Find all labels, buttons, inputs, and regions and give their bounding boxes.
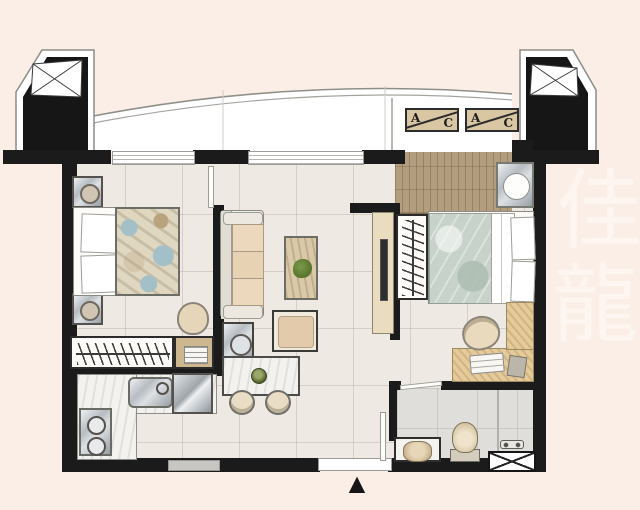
nightstand-lamp-2 bbox=[72, 293, 103, 325]
wall-top-right bbox=[362, 150, 405, 164]
bowl-icon bbox=[251, 368, 267, 384]
pillow bbox=[510, 261, 535, 303]
tv-icon bbox=[380, 239, 388, 301]
ottoman-stool bbox=[272, 310, 318, 352]
desk-2-vertical bbox=[506, 302, 534, 350]
kitchen-sink bbox=[128, 377, 173, 408]
dining-table bbox=[222, 356, 300, 396]
entrance-door-leaf bbox=[380, 412, 386, 461]
ac-unit-1-letter-c: C bbox=[443, 116, 453, 130]
dining-stool-1 bbox=[229, 390, 255, 415]
wall-east bbox=[533, 163, 546, 460]
desk-items bbox=[184, 346, 208, 364]
sofa-arm bbox=[223, 305, 263, 319]
ac-unit-2-letter-a: A bbox=[471, 111, 480, 125]
tv-console bbox=[372, 212, 394, 334]
ac-unit-1-letter-a: A bbox=[411, 111, 420, 125]
ottoman-cushion bbox=[278, 316, 314, 348]
shower-faucet-icon bbox=[500, 440, 524, 449]
wall-bath-north-b bbox=[441, 381, 534, 390]
sofa-cushion bbox=[232, 251, 264, 279]
sofa-cushion bbox=[232, 278, 264, 306]
quilt-bed-2 bbox=[429, 213, 494, 304]
wardrobe-1 bbox=[70, 336, 174, 369]
laptop-icon bbox=[469, 353, 505, 375]
wall-bath-west bbox=[389, 381, 397, 441]
kitchen-vent bbox=[168, 460, 220, 471]
lamp-icon bbox=[80, 184, 100, 204]
wall-deck-right bbox=[512, 140, 533, 164]
window-bedroom1 bbox=[112, 151, 195, 165]
bedroom1-door-leaf bbox=[208, 166, 214, 208]
pillow bbox=[80, 213, 117, 253]
wardrobe-2 bbox=[396, 214, 428, 300]
watermark-char-1: 佳 bbox=[556, 168, 640, 254]
burner-icon bbox=[87, 416, 106, 435]
duct-shaft-symbol bbox=[488, 451, 536, 472]
watermark-char-2: 龍 bbox=[552, 262, 638, 348]
coffee-table bbox=[284, 236, 318, 300]
ac-unit-2: A C bbox=[465, 108, 519, 132]
nightstand-lamp-1 bbox=[72, 176, 103, 208]
desk-chair-1 bbox=[177, 302, 209, 335]
desk-1 bbox=[174, 336, 214, 369]
washer-door-icon bbox=[230, 334, 252, 356]
ac-unit-2-letter-c: C bbox=[503, 116, 513, 130]
bathroom-vanity bbox=[394, 437, 441, 462]
sofa bbox=[220, 210, 264, 318]
ac-unit-1: A C bbox=[405, 108, 459, 132]
desk-box bbox=[507, 355, 528, 378]
quilt-bed-1 bbox=[115, 207, 180, 296]
toilet-bowl bbox=[452, 422, 478, 453]
pillow bbox=[510, 217, 535, 261]
sink-bowl-icon bbox=[403, 441, 432, 462]
wall-top-mid bbox=[193, 150, 250, 164]
sofa-back bbox=[221, 211, 232, 319]
dining-stool-2 bbox=[265, 390, 291, 415]
hanger-icons bbox=[77, 343, 169, 365]
laundry-basin bbox=[496, 162, 534, 208]
burner-icon bbox=[87, 437, 106, 456]
floor-plan: A C A C bbox=[0, 0, 640, 510]
bed-double-2 bbox=[428, 211, 534, 304]
wall-top-left bbox=[3, 150, 111, 164]
basin-bowl-icon bbox=[503, 173, 530, 200]
pillow bbox=[80, 254, 117, 293]
hanger-icons bbox=[402, 220, 424, 296]
sofa-cushion bbox=[232, 224, 264, 252]
stove-two-burner bbox=[79, 408, 112, 456]
entrance-arrow-icon: ▲ bbox=[340, 469, 374, 499]
faucet-icon bbox=[156, 382, 169, 395]
refrigerator bbox=[172, 373, 213, 414]
lamp-icon bbox=[80, 301, 100, 321]
shower-divider-line bbox=[497, 388, 499, 452]
plant-icon bbox=[293, 259, 312, 278]
window-living bbox=[248, 151, 364, 165]
